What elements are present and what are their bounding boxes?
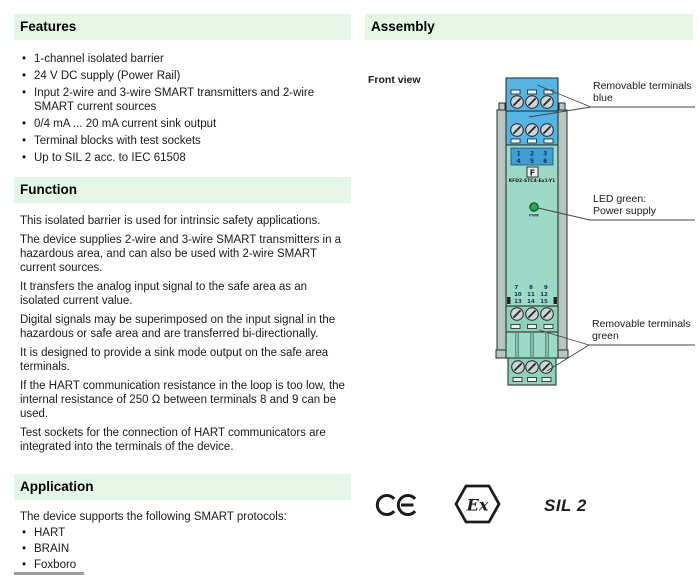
callout-line: Removable terminals <box>593 81 692 93</box>
terminal-block-blue-upper <box>506 78 558 111</box>
sil2-mark: SIL 2 <box>544 496 587 516</box>
ex-mark: Ex <box>456 486 499 522</box>
terminal-block-green-lower <box>508 358 556 385</box>
callout-removable-terminals-blue: Removable terminals blue <box>593 81 692 104</box>
svg-text:F: F <box>530 169 535 178</box>
terminal-block-green-upper <box>506 306 558 332</box>
svg-text:4 5 6: 4 5 6 <box>517 158 548 165</box>
callout-line: blue <box>593 93 692 105</box>
pepperl-fuchs-logo: F <box>527 167 538 178</box>
svg-text:10 11 12: 10 11 12 <box>514 292 548 298</box>
svg-text:1 2 3: 1 2 3 <box>517 151 548 158</box>
svg-text:13 14 15: 13 14 15 <box>514 299 548 305</box>
callout-line: Power supply <box>593 206 656 218</box>
page-bottom-cutoff <box>14 572 84 575</box>
svg-text:Ex: Ex <box>466 496 489 515</box>
callout-line: LED green: <box>593 194 656 206</box>
callout-removable-terminals-green: Removable terminals green <box>592 319 691 342</box>
upper-terminal-numbers: 1 2 3 4 5 6 <box>511 148 553 165</box>
ce-mark: CE <box>377 496 415 515</box>
svg-text:7 8 9: 7 8 9 <box>514 285 547 291</box>
device-model-label: KFD2-STC4-Ex1-Y1 <box>509 178 556 184</box>
callout-line: Removable terminals <box>592 319 691 331</box>
power-led: PWR <box>529 203 539 218</box>
svg-text:PWR: PWR <box>529 213 539 218</box>
callout-line: green <box>592 331 691 343</box>
datasheet-page: Features •1-channel isolated barrier •24… <box>0 0 700 577</box>
callout-led-green: LED green: Power supply <box>593 194 656 217</box>
